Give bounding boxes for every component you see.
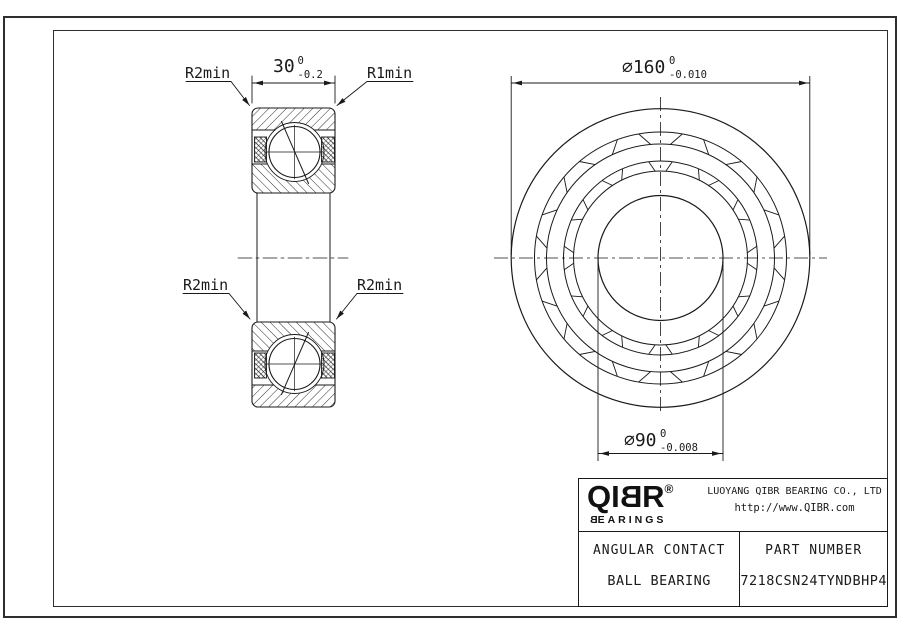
dim-bore-upper-tol: 0: [660, 428, 666, 440]
title-block-header-row: QIBR® BEARINGS LUOYANG QIBR BEARING CO.,…: [579, 479, 887, 532]
label-r1min-top-right: R1min: [367, 64, 412, 82]
bearing-section-view: 30 0 -0.2 R2min R1min R2min R2min: [183, 55, 413, 408]
drawing-sheet: 30 0 -0.2 R2min R1min R2min R2min: [0, 0, 900, 636]
company-website-link[interactable]: http://www.QIBR.com: [705, 502, 884, 514]
title-block-detail-row: ANGULAR CONTACT BALL BEARING PART NUMBER…: [579, 532, 887, 606]
product-type-line2: BALL BEARING: [579, 573, 739, 589]
company-name: LUOYANG QIBR BEARING CO., LTD: [705, 486, 884, 497]
dim-width-value: 30: [273, 56, 295, 77]
registered-trademark-icon: ®: [665, 482, 674, 496]
cage-section-right: [322, 353, 335, 378]
cage-section-left: [255, 353, 267, 378]
part-number-cell: PART NUMBER 7218CSN24TYNDBHP4: [740, 532, 887, 606]
dim-bore-value: ⌀90: [624, 430, 657, 451]
dimension-width: 30 0 -0.2: [252, 55, 335, 103]
logo-subtitle: BEARINGS: [587, 515, 673, 526]
dim-od-upper-tol: 0: [669, 55, 675, 67]
cage-section-left: [255, 137, 267, 162]
company-info: LUOYANG QIBR BEARING CO., LTD http://www…: [705, 486, 884, 514]
dim-od-lower-tol: -0.010: [669, 69, 707, 81]
section-top-half: [251, 107, 336, 194]
logo-wordmark: QIBR®: [587, 481, 673, 512]
label-r2min-bottom-left: R2min: [183, 276, 228, 294]
dim-od-value: ⌀160: [622, 57, 665, 78]
company-logo: QIBR® BEARINGS: [587, 481, 673, 526]
dim-width-upper-tol: 0: [298, 55, 304, 67]
product-type-line1: ANGULAR CONTACT: [579, 543, 739, 558]
title-block: QIBR® BEARINGS LUOYANG QIBR BEARING CO.,…: [578, 478, 888, 607]
dim-bore-lower-tol: -0.008: [660, 442, 698, 454]
cage-section-right: [322, 137, 335, 162]
label-r2min-bottom-right: R2min: [357, 276, 402, 294]
label-r2min-top-left: R2min: [185, 64, 230, 82]
product-type-cell: ANGULAR CONTACT BALL BEARING: [579, 532, 740, 606]
dim-width-lower-tol: -0.2: [298, 69, 323, 81]
part-number-value: 7218CSN24TYNDBHP4: [740, 573, 887, 589]
bearing-front-view: ⌀160 0 -0.010 ⌀90 0 -0.008: [494, 55, 827, 461]
section-bottom-half: [251, 321, 336, 408]
part-number-label: PART NUMBER: [740, 543, 887, 558]
